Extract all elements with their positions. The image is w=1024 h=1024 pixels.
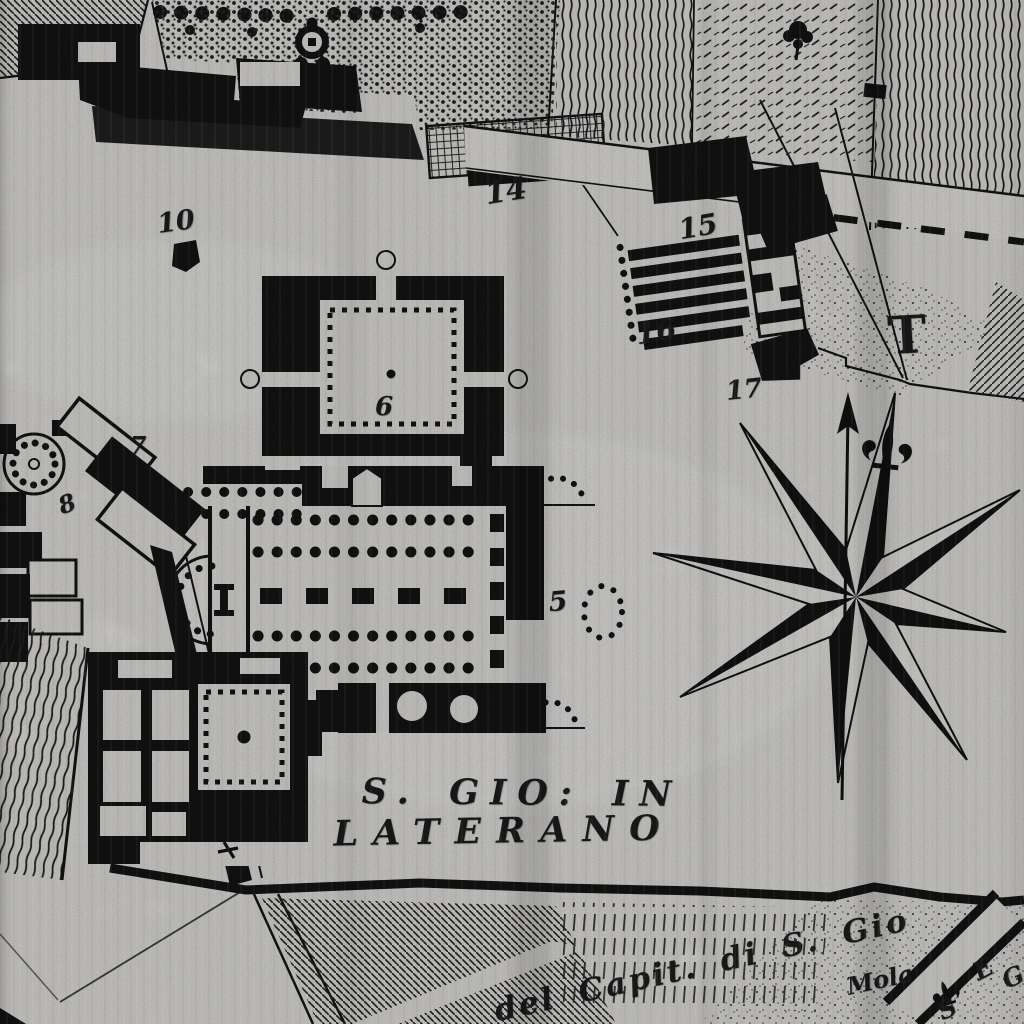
label-10: 10 xyxy=(156,206,197,238)
label-5: 5 xyxy=(547,588,568,617)
label-7: 7 xyxy=(130,434,147,458)
engraved-map-scan: 10 14 15 16 17 6 5 7 8 T S. GIO: IN LATE… xyxy=(0,0,1024,1024)
map-title-line1: S. GIO: IN xyxy=(362,774,683,812)
paper-grain-overlay xyxy=(0,0,1024,1024)
label-15: 15 xyxy=(676,210,719,244)
label-6: 6 xyxy=(375,394,393,420)
map-artwork xyxy=(0,0,1024,1024)
map-title-line2: LATERANO xyxy=(333,811,675,852)
label-14: 14 xyxy=(483,174,529,210)
label-16: 16 xyxy=(634,315,678,349)
label-letter-t: T xyxy=(886,309,927,363)
label-17: 17 xyxy=(725,375,764,405)
